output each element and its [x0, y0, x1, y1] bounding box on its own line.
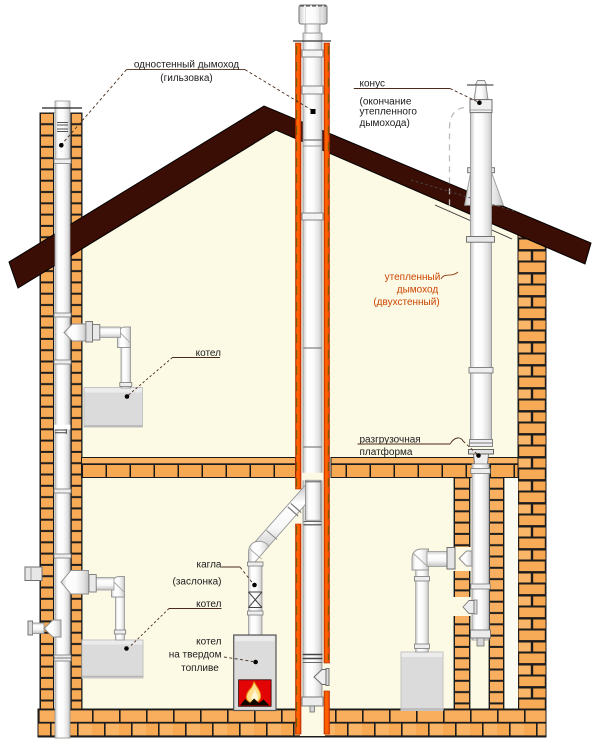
- svg-text:топливе: топливе: [181, 663, 219, 674]
- svg-text:кагла: кагла: [197, 559, 222, 570]
- svg-text:утепленный: утепленный: [385, 272, 441, 283]
- svg-text:конус: конус: [360, 79, 385, 90]
- svg-text:(гильзовка): (гильзовка): [160, 73, 212, 84]
- svg-text:утепленного: утепленного: [360, 107, 418, 118]
- svg-text:дымохода): дымохода): [360, 118, 410, 129]
- svg-text:платформа: платформа: [360, 446, 413, 458]
- svg-text:(заслонка): (заслонка): [173, 577, 222, 588]
- svg-text:дымоход: дымоход: [397, 285, 439, 296]
- svg-text:на твердом: на твердом: [169, 650, 222, 661]
- svg-text:одностенный дымоход: одностенный дымоход: [134, 60, 239, 71]
- svg-text:(двухстенный): (двухстенный): [373, 297, 439, 308]
- svg-text:котел: котел: [196, 636, 222, 647]
